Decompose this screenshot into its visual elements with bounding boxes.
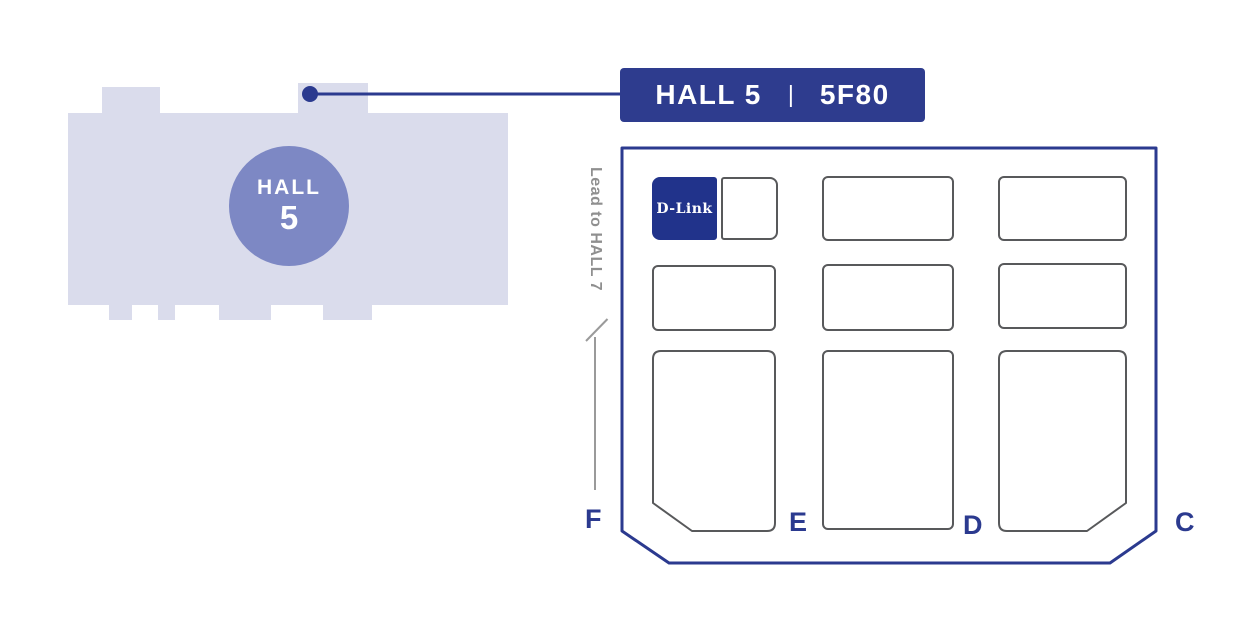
booth-location-banner: HALL 5 | 5F80 xyxy=(620,68,925,122)
aisle-label-e: E xyxy=(789,509,807,536)
booth-shape-r2c1[interactable] xyxy=(653,266,775,330)
hall-5-badge[interactable]: HALL 5 xyxy=(229,146,349,266)
booth-shape-r1c1b[interactable] xyxy=(721,177,778,240)
booth-shape-r2c3[interactable] xyxy=(999,264,1126,328)
booth-shape-r1c3[interactable] xyxy=(999,177,1126,240)
dlink-booth[interactable]: D-Link xyxy=(652,177,717,240)
hall-badge-number: 5 xyxy=(280,201,298,236)
aisle-label-d: D xyxy=(963,512,983,539)
booth-shape-r3c2[interactable] xyxy=(823,351,953,529)
hall-7-direction-arrow-icon xyxy=(586,319,608,490)
banner-separator: | xyxy=(788,81,794,108)
aisle-label-f: F xyxy=(585,506,602,533)
banner-hall-label: HALL 5 xyxy=(655,79,762,111)
banner-booth-number: 5F80 xyxy=(820,79,890,111)
booth-shape-r3c3[interactable] xyxy=(999,351,1126,531)
exhibition-locator-map: HALL 5 HALL 5 | 5F80 D-Link Lead to HALL… xyxy=(0,0,1251,626)
aisle-label-c: C xyxy=(1175,509,1195,536)
callout-dot xyxy=(302,86,318,102)
booth-shape-r2c2[interactable] xyxy=(823,265,953,330)
booth-shape-r3c1[interactable] xyxy=(653,351,775,531)
booth-shape-r1c2[interactable] xyxy=(823,177,953,240)
dlink-logo: D-Link xyxy=(656,201,712,217)
hall-badge-label: HALL xyxy=(257,177,321,199)
lead-to-hall-7-label: Lead to HALL 7 xyxy=(582,167,604,317)
